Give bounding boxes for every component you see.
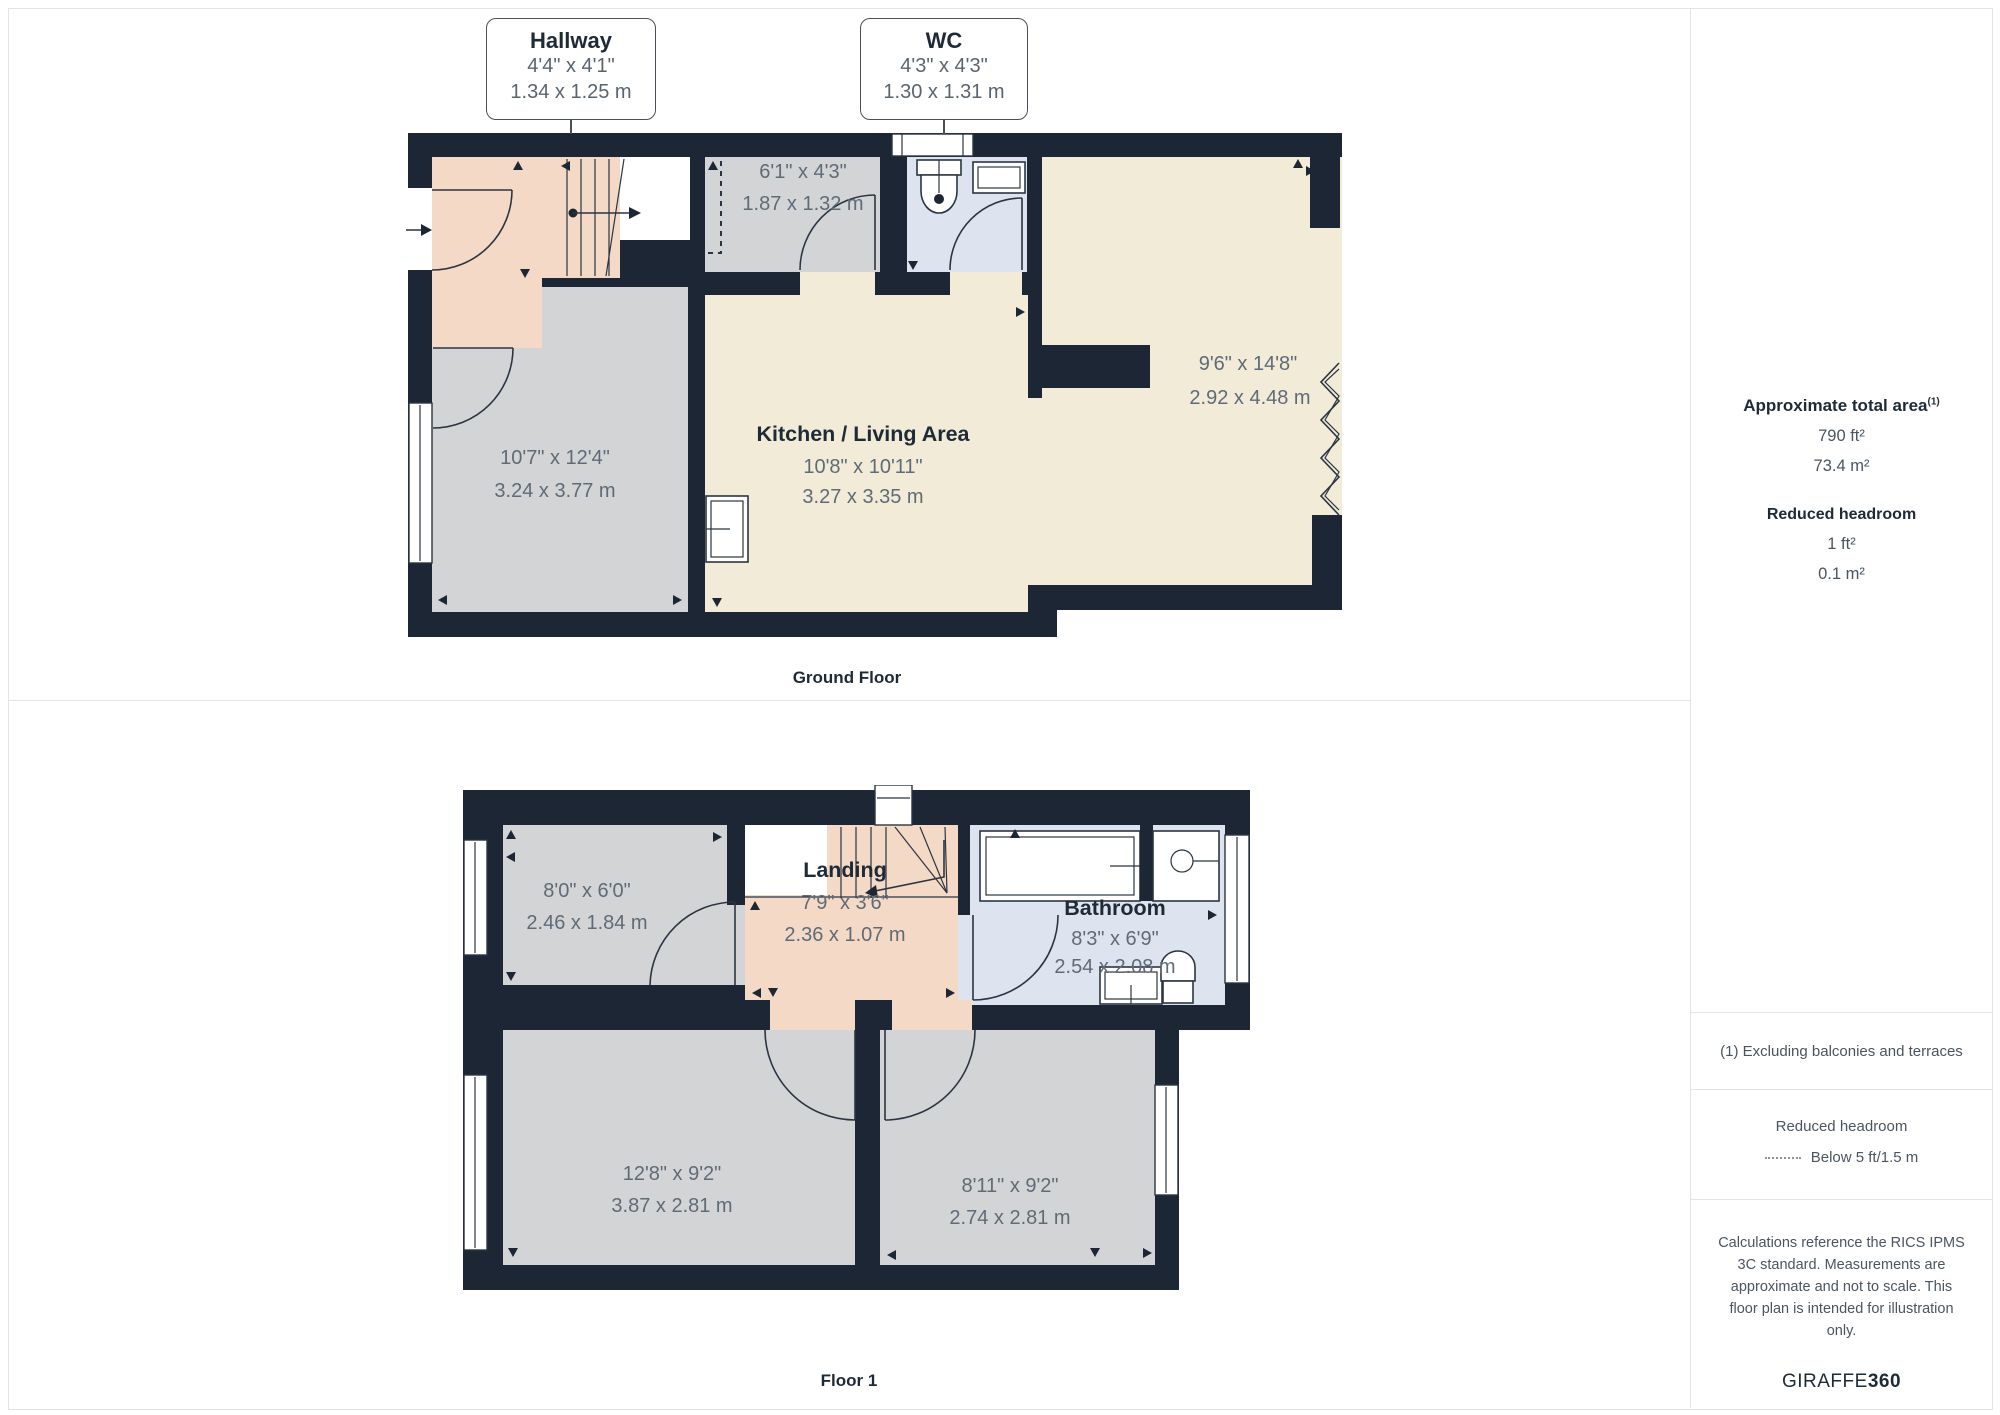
hallway-callout-title: Hallway bbox=[487, 28, 655, 53]
hallway-callout-imperial: 4'4" x 4'1" bbox=[487, 53, 655, 79]
hallway-callout-leader bbox=[570, 120, 572, 134]
ground-floor-label: Ground Floor bbox=[717, 668, 977, 688]
kitchen-name: Kitchen / Living Area bbox=[756, 422, 970, 446]
window bbox=[409, 403, 432, 563]
reception-wall-stub bbox=[1042, 345, 1150, 388]
bedroom2-dim-imperial: 8'11" x 9'2" bbox=[961, 1175, 1058, 1197]
chimney-window bbox=[875, 785, 912, 825]
bedroom1-door-gap bbox=[770, 1000, 855, 1030]
storage-dim-metric: 1.87 x 1.32 m bbox=[742, 193, 863, 215]
bedroom1-floor bbox=[503, 1030, 855, 1265]
bathroom-name: Bathroom bbox=[1064, 896, 1166, 920]
hallway-floor bbox=[432, 157, 620, 278]
sidebar-note-section: (1) Excluding balconies and terraces bbox=[1691, 1012, 1992, 1089]
room-dim-metric: 2.46 x 1.84 m bbox=[526, 912, 647, 934]
wc-callout-metric: 1.30 x 1.31 m bbox=[861, 79, 1027, 105]
wc-lower-wall bbox=[1028, 295, 1042, 398]
wc-callout-leader bbox=[943, 120, 945, 134]
reception-dim-metric: 2.92 x 4.48 m bbox=[1189, 387, 1310, 409]
reduced-headroom-sqft: 1 ft² bbox=[1691, 535, 1992, 554]
storage-dim-imperial: 6'1" x 4'3" bbox=[759, 161, 846, 183]
sidebar-disclaimer-section: Calculations reference the RICS IPMS 3C … bbox=[1691, 1199, 1992, 1408]
reception-corner-wall bbox=[1310, 157, 1340, 228]
shower-divider-wall bbox=[1140, 825, 1153, 901]
kitchen-dim-imperial: 10'8" x 10'11" bbox=[803, 456, 922, 478]
shower-icon bbox=[1153, 831, 1219, 901]
bathtub-icon bbox=[980, 831, 1140, 901]
landing-name: Landing bbox=[803, 858, 887, 882]
total-area-title: Approximate total area(1) bbox=[1691, 396, 1992, 416]
total-area-title-text: Approximate total area bbox=[1743, 396, 1927, 415]
room-door-gap bbox=[727, 905, 745, 985]
outside-cutout bbox=[1179, 1030, 1250, 1290]
window bbox=[464, 840, 487, 955]
ground-floor-plan: 6'1" x 4'3" 1.87 x 1.32 m 10'7" x 12'4" … bbox=[405, 133, 1355, 653]
bathroom-dim-metric: 2.54 x 2.08 m bbox=[1054, 956, 1175, 978]
wc-door-gap bbox=[950, 272, 1022, 295]
wc-callout-imperial: 4'3" x 4'3" bbox=[861, 53, 1027, 79]
bathroom-dim-imperial: 8'3" x 6'9" bbox=[1071, 928, 1158, 950]
kitchen-reception-opening bbox=[1028, 398, 1042, 585]
kitchen-dim-metric: 3.27 x 3.35 m bbox=[802, 486, 923, 508]
landing-dim-imperial: 7'9" x 3'6" bbox=[801, 892, 888, 914]
room-dim-imperial: 8'0" x 6'0" bbox=[543, 880, 630, 902]
storage-door-gap bbox=[800, 272, 875, 295]
brand-number: 360 bbox=[1868, 1371, 1901, 1392]
sidebar-area-section: Approximate total area(1) 790 ft² 73.4 m… bbox=[1691, 8, 1992, 1012]
sink-icon bbox=[973, 162, 1025, 193]
panel-divider bbox=[8, 700, 1691, 701]
window bbox=[464, 1075, 487, 1250]
legend-text: Below 5 ft/1.5 m bbox=[1811, 1149, 1919, 1166]
bathroom-door-gap bbox=[958, 915, 970, 1000]
outside-cutout bbox=[1057, 610, 1342, 637]
reduced-headroom-sqm: 0.1 m² bbox=[1691, 565, 1992, 584]
bedroom2-dim-metric: 2.74 x 2.81 m bbox=[949, 1207, 1070, 1229]
reduced-headroom-title: Reduced headroom bbox=[1691, 506, 1992, 524]
sidebar-legend-section: Reduced headroom Below 5 ft/1.5 m bbox=[1691, 1089, 1992, 1199]
floor1-label: Floor 1 bbox=[719, 1371, 979, 1391]
hallway-callout-metric: 1.34 x 1.25 m bbox=[487, 79, 655, 105]
window bbox=[892, 134, 973, 156]
hallway-floor-lower bbox=[432, 278, 542, 348]
bedroom2-door-gap bbox=[892, 1000, 972, 1030]
living-dim-imperial: 10'7" x 12'4" bbox=[500, 447, 610, 469]
reception-dim-imperial: 9'6" x 14'8" bbox=[1199, 353, 1298, 375]
stairwell-void bbox=[620, 157, 690, 240]
giraffe360-logo: GIRAFFE360 bbox=[1715, 1368, 1968, 1397]
room-floor bbox=[503, 825, 727, 985]
legend-row: Below 5 ft/1.5 m bbox=[1691, 1149, 1992, 1166]
sidebar: Approximate total area(1) 790 ft² 73.4 m… bbox=[1690, 8, 1992, 1408]
disclaimer-text: Calculations reference the RICS IPMS 3C … bbox=[1715, 1232, 1968, 1342]
kitchen-sink-icon bbox=[706, 496, 748, 562]
wc-callout-title: WC bbox=[861, 28, 1027, 53]
landing-dim-metric: 2.36 x 1.07 m bbox=[784, 924, 905, 946]
kitchen-floor bbox=[705, 295, 1028, 612]
total-area-sqft: 790 ft² bbox=[1691, 427, 1992, 446]
brand-name: GIRAFFE bbox=[1782, 1371, 1868, 1392]
dashed-line-icon bbox=[1765, 1157, 1801, 1159]
window bbox=[1225, 835, 1249, 983]
balconies-note: (1) Excluding balconies and terraces bbox=[1720, 1043, 1963, 1060]
wc-callout: WC 4'3" x 4'3" 1.30 x 1.31 m bbox=[860, 18, 1028, 120]
window bbox=[1155, 1085, 1178, 1195]
legend-title: Reduced headroom bbox=[1691, 1118, 1992, 1135]
total-area-note-ref: (1) bbox=[1928, 396, 1940, 407]
total-area-sqm: 73.4 m² bbox=[1691, 457, 1992, 476]
hallway-callout: Hallway 4'4" x 4'1" 1.34 x 1.25 m bbox=[486, 18, 656, 120]
bedroom1-dim-imperial: 12'8" x 9'2" bbox=[623, 1163, 722, 1185]
living-dim-metric: 3.24 x 3.77 m bbox=[494, 480, 615, 502]
bedroom2-floor bbox=[880, 1030, 1155, 1265]
bedroom1-dim-metric: 3.87 x 2.81 m bbox=[611, 1195, 732, 1217]
floor1-plan: 8'0" x 6'0" 2.46 x 1.84 m Landing 7'9" x… bbox=[455, 785, 1255, 1300]
